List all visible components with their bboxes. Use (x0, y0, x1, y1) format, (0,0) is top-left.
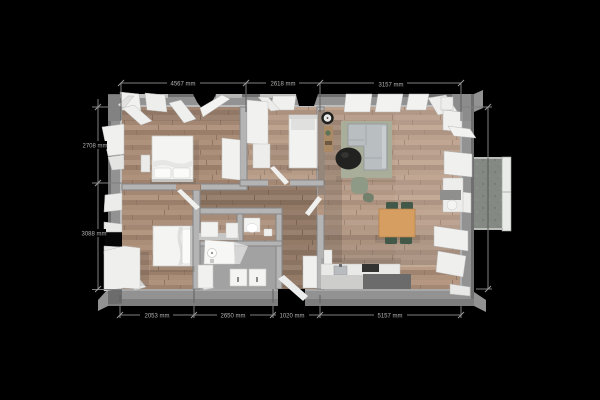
svg-text:1020 mm: 1020 mm (279, 314, 304, 320)
svg-text:3157 mm: 3157 mm (378, 83, 403, 89)
svg-text:3088 mm: 3088 mm (81, 232, 106, 238)
svg-text:2708 mm: 2708 mm (82, 144, 107, 150)
svg-text:4567 mm: 4567 mm (170, 82, 195, 88)
svg-text:5157 mm: 5157 mm (377, 314, 402, 320)
svg-text:2650 mm: 2650 mm (220, 314, 245, 320)
svg-text:2618 mm: 2618 mm (270, 82, 295, 88)
svg-text:2053 mm: 2053 mm (144, 314, 169, 320)
